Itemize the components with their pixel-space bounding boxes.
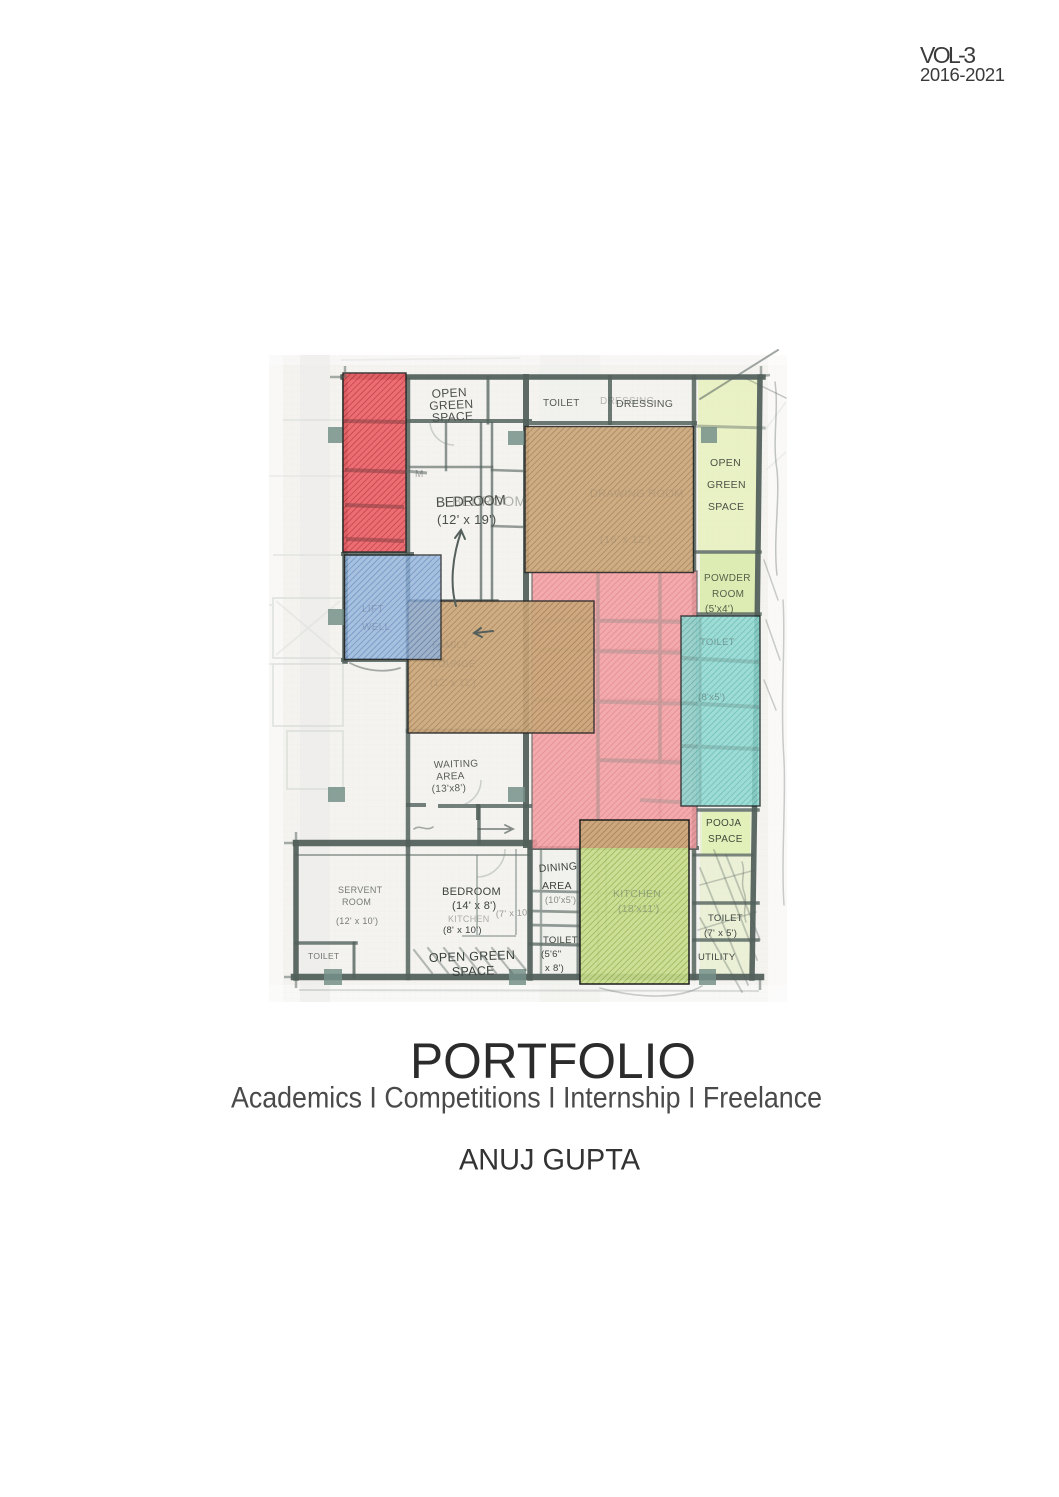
svg-text:TOILET: TOILET xyxy=(308,951,339,961)
svg-text:Academics I Competitions I Int: Academics I Competitions I Internship I … xyxy=(231,1082,822,1115)
svg-text:(16' x 12'): (16' x 12') xyxy=(600,534,651,546)
svg-text:(5'6": (5'6" xyxy=(541,949,561,960)
svg-text:WAITING: WAITING xyxy=(434,758,479,771)
svg-text:POWDER: POWDER xyxy=(704,573,751,584)
svg-text:DRAWING ROOM: DRAWING ROOM xyxy=(590,488,684,500)
svg-text:AREA: AREA xyxy=(542,880,572,892)
svg-text:SPACE: SPACE xyxy=(432,409,474,425)
svg-text:ANUJ GUPTA: ANUJ GUPTA xyxy=(459,1144,640,1177)
svg-text:OPEN: OPEN xyxy=(710,457,741,469)
svg-text:(10'x5'): (10'x5') xyxy=(545,895,576,905)
svg-text:DRESSING: DRESSING xyxy=(616,398,673,410)
svg-text:UTILITY: UTILITY xyxy=(698,952,736,963)
svg-text:SPACE: SPACE xyxy=(708,834,743,845)
svg-text:(13'x8'): (13'x8') xyxy=(431,783,466,795)
svg-text:FAMILY: FAMILY xyxy=(432,640,469,651)
svg-text:PORTFOLIO: PORTFOLIO xyxy=(410,1032,696,1089)
svg-text:GREEN: GREEN xyxy=(707,479,746,491)
svg-text:(12' x 19'): (12' x 19') xyxy=(437,512,497,527)
svg-text:WELL: WELL xyxy=(362,622,391,633)
svg-text:BEDROOM: BEDROOM xyxy=(436,492,506,510)
svg-text:KITCHEN: KITCHEN xyxy=(448,914,490,924)
svg-text:2016-2021: 2016-2021 xyxy=(920,64,1005,85)
svg-text:AREA: AREA xyxy=(436,771,465,783)
svg-text:M: M xyxy=(415,469,424,480)
svg-text:(12' x 11'): (12' x 11') xyxy=(430,678,476,689)
svg-text:ROOM: ROOM xyxy=(712,589,744,600)
svg-text:(12' x 10'): (12' x 10') xyxy=(336,916,378,926)
svg-text:TOILET: TOILET xyxy=(700,637,735,648)
svg-text:TOILET: TOILET xyxy=(543,935,578,946)
svg-text:LOUNGE: LOUNGE xyxy=(432,659,476,670)
svg-text:TOILET: TOILET xyxy=(543,398,580,409)
svg-text:(8'x5'): (8'x5') xyxy=(698,692,725,703)
svg-text:x 8'): x 8') xyxy=(545,963,564,974)
svg-text:(18'x11'): (18'x11') xyxy=(618,903,660,915)
svg-text:(14' x 8'): (14' x 8') xyxy=(452,900,497,912)
svg-text:BEDROOM: BEDROOM xyxy=(442,886,501,898)
svg-text:ROOM: ROOM xyxy=(342,897,371,907)
svg-text:LIFT: LIFT xyxy=(362,604,384,615)
svg-text:KITCHEN: KITCHEN xyxy=(613,888,661,900)
svg-text:(7' x 10'): (7' x 10') xyxy=(496,907,533,919)
svg-text:POOJA: POOJA xyxy=(706,818,741,829)
svg-text:SPACE: SPACE xyxy=(708,501,744,513)
svg-text:SERVENT: SERVENT xyxy=(338,885,383,895)
svg-text:(5'x4'): (5'x4') xyxy=(705,604,734,615)
